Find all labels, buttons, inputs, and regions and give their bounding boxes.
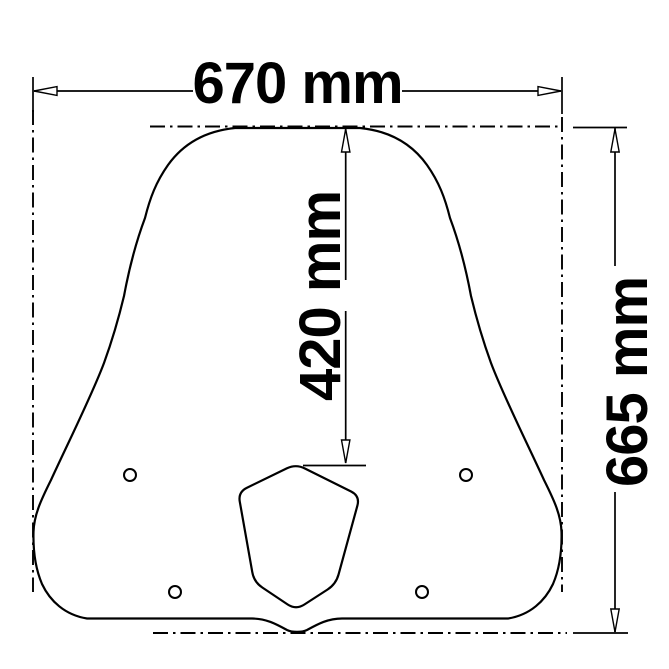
dimension-drawing: 670 mm 420 mm 665 mm (0, 0, 669, 669)
arrowhead-left-icon (34, 87, 57, 96)
mounting-hole-bottom-right (416, 586, 428, 598)
width-dimension: 670 mm (33, 51, 562, 116)
arrowhead-up-icon (342, 129, 350, 152)
arrowhead-up-icon (611, 129, 619, 152)
drop-dimension: 420 mm (288, 128, 366, 466)
headlight-cutout (240, 466, 358, 607)
width-dimension-label: 670 mm (192, 51, 402, 116)
arrowhead-down-icon (611, 609, 619, 632)
arrowhead-right-icon (538, 87, 561, 96)
mounting-holes (124, 469, 472, 598)
arrowhead-down-icon (342, 440, 350, 463)
mounting-hole-top-left (124, 469, 136, 481)
height-dimension-label: 665 mm (595, 277, 660, 487)
height-dimension: 665 mm (573, 128, 660, 634)
mounting-hole-top-right (460, 469, 472, 481)
drop-dimension-label: 420 mm (288, 191, 353, 401)
drawing-canvas: 670 mm 420 mm 665 mm (0, 0, 669, 669)
mounting-hole-bottom-left (169, 586, 181, 598)
